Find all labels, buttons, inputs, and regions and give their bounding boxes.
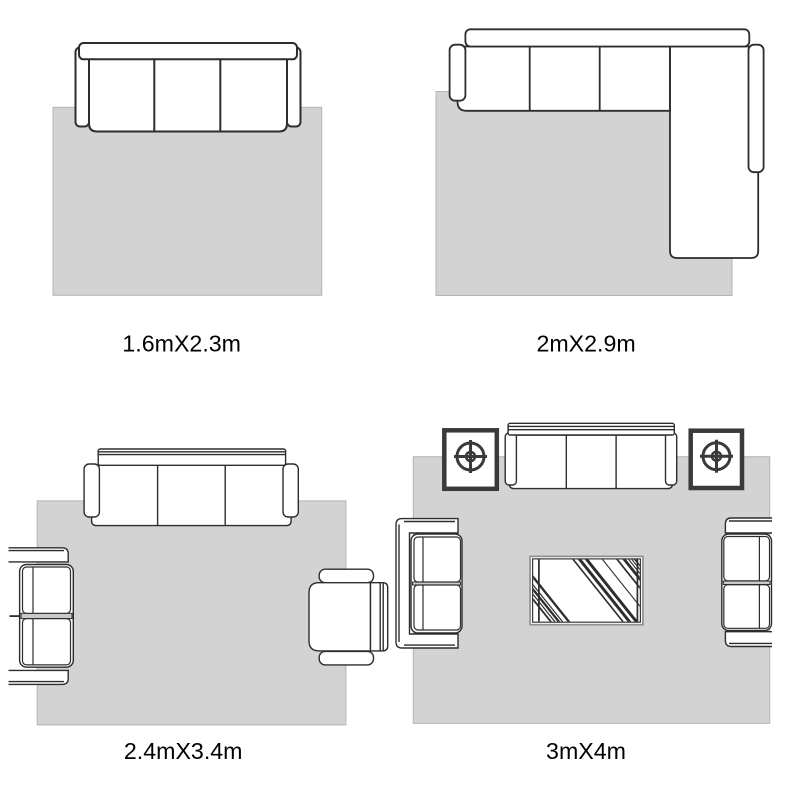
svg-text:3mX4m: 3mX4m xyxy=(546,738,626,764)
svg-text:2.4mX3.4m: 2.4mX3.4m xyxy=(124,738,243,764)
svg-text:1.6mX2.3m: 1.6mX2.3m xyxy=(122,331,241,357)
svg-text:2mX2.9m: 2mX2.9m xyxy=(536,331,635,357)
